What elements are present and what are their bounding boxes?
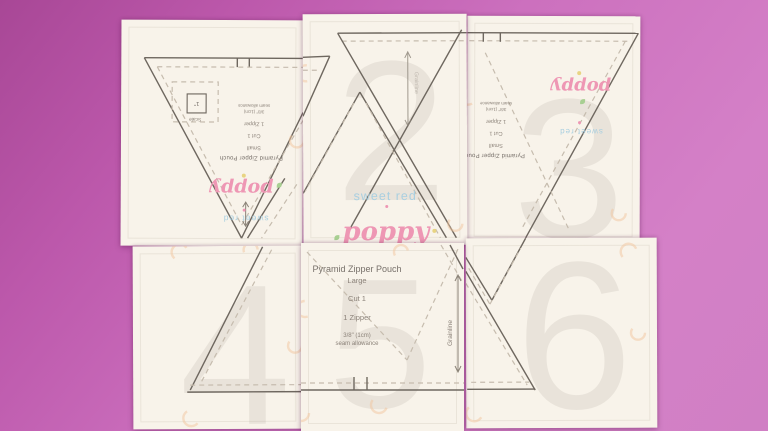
poppy-doodle-icon (303, 64, 315, 83)
brand-logo: sweet red poppy (207, 163, 285, 223)
grainline-arrow-icon: Grainline (405, 52, 419, 126)
poppy-doodle-icon (617, 240, 640, 263)
poppy-doodle-icon (168, 246, 191, 264)
pattern-page-4: 4 (133, 246, 304, 430)
logo-dot-icon (432, 229, 436, 233)
grainline-label: Grainline (447, 320, 454, 346)
pattern-lines-page6 (466, 238, 658, 429)
poppy-doodle-icon (301, 405, 309, 421)
grainline-label: Grainline (413, 72, 419, 94)
grainline-arrow-icon: Grainline (447, 275, 461, 372)
logo-dot-icon (385, 205, 388, 208)
logo-leaf-icon (580, 99, 585, 104)
poppy-doodle-icon (612, 206, 626, 220)
pattern-page-2: 2 Grainline sweet red poppy (303, 14, 468, 246)
photo-of-printed-pattern-pages: 1" Scale Pyramid Zipper Pouch Small Cut … (0, 0, 768, 431)
brand-logo: sweet red poppy (330, 190, 440, 245)
poppy-doodle-icon (631, 326, 645, 340)
poppy-doodle-icon (391, 243, 410, 262)
test-square-label: 1" (187, 94, 206, 113)
logo-dot-icon (578, 71, 582, 75)
poppy-doodle-icon (369, 395, 390, 416)
logo-dot-icon (579, 121, 582, 124)
pattern-page-1: 1" Scale Pyramid Zipper Pouch Small Cut … (121, 20, 304, 247)
poppy-doodle-icon (466, 402, 486, 424)
pattern-page-5: 5 Grainline Pyramid Zipper Pouch Large (301, 243, 464, 431)
test-square-caption: Scale (172, 116, 218, 122)
pattern-page-6: 6 (466, 238, 658, 429)
poppy-doodle-icon (448, 217, 462, 231)
logo-leaf-icon (334, 235, 339, 240)
brand-logo: sweet red poppy (549, 61, 613, 135)
logo-leaf-icon (277, 183, 282, 188)
logo-dot-icon (242, 173, 246, 177)
poppy-doodle-icon (288, 339, 302, 353)
piece-label-small: Pyramid Zipper Pouch Small Cut 1 1 Zippe… (467, 100, 525, 158)
logo-dot-icon (243, 208, 246, 211)
pattern-lines-page4 (133, 246, 304, 430)
piece-label-large: Pyramid Zipper Pouch Large Cut 1 1 Zippe… (305, 264, 409, 349)
piece-label-small: Pyramid Zipper Pouch Small Cut 1 1 Zippe… (225, 102, 283, 160)
pattern-page-3: 3 Pyramid Zipper Pouch Small Cut 1 1 Zip… (467, 16, 641, 245)
poppy-doodle-icon (180, 407, 203, 430)
